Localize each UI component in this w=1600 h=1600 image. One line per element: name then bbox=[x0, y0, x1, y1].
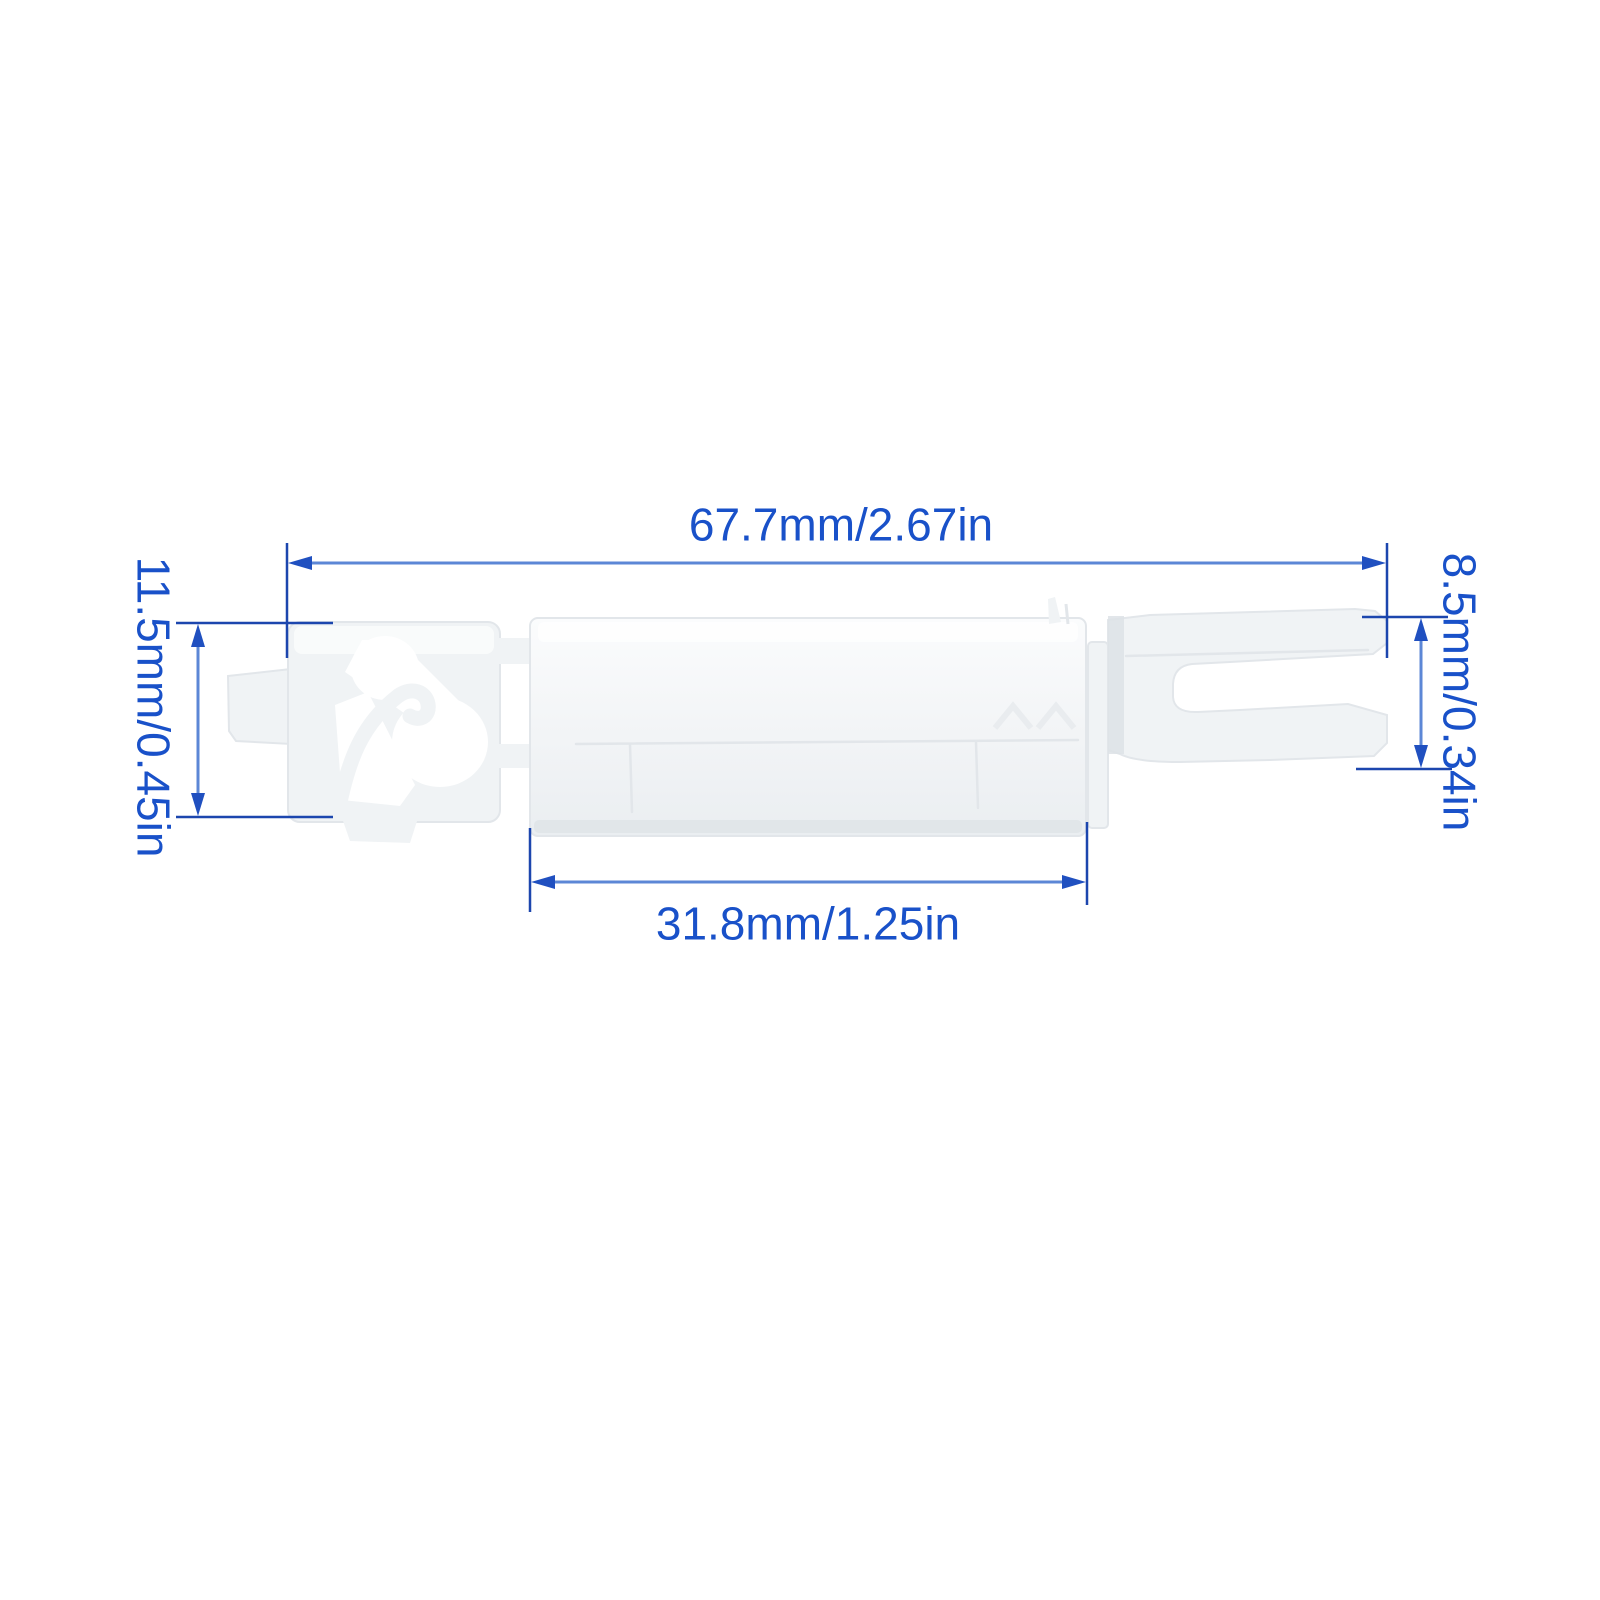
dimension-label-clip-height: 11.5mm/0.45in bbox=[128, 557, 179, 858]
fork-body bbox=[1108, 609, 1387, 762]
clip-left-foot bbox=[342, 818, 418, 843]
clip-strap-top bbox=[497, 638, 533, 664]
arrowhead-clip-bottom bbox=[191, 793, 205, 816]
fork-base-shade bbox=[1108, 616, 1124, 754]
fork-junction bbox=[1088, 642, 1108, 828]
clip-left-tab bbox=[228, 669, 291, 744]
dimension-label-fork-height: 8.5mm/0.34in bbox=[1434, 553, 1485, 832]
arrowhead-body-right bbox=[1062, 875, 1086, 889]
diagram-canvas: 67.7mm/2.67in 11.5mm/0.45in 8.5mm/0.34in… bbox=[0, 0, 1600, 1600]
center-body-bottom-shade bbox=[534, 820, 1082, 833]
arrowhead-fork-top bbox=[1414, 618, 1428, 641]
clip-strap-bottom bbox=[497, 744, 533, 768]
arrowhead-body-left bbox=[531, 875, 555, 889]
arrowhead-clip-top bbox=[191, 624, 205, 647]
part-drawing bbox=[0, 0, 1600, 1600]
dimension-label-body-length: 31.8mm/1.25in bbox=[656, 899, 960, 950]
center-body-section bbox=[530, 597, 1086, 836]
center-body-spike-line bbox=[1066, 604, 1068, 624]
fork-section bbox=[1088, 609, 1387, 828]
clip-part bbox=[228, 597, 1387, 843]
center-body-spike bbox=[1048, 597, 1061, 624]
dimension-label-overall-length: 67.7mm/2.67in bbox=[689, 500, 993, 551]
clip-left-section bbox=[228, 622, 533, 843]
arrowhead-fork-bottom bbox=[1414, 745, 1428, 768]
arrowhead-overall-right bbox=[1362, 556, 1386, 570]
center-body bbox=[530, 618, 1086, 836]
arrowhead-overall-left bbox=[288, 556, 312, 570]
center-body-top-highlight bbox=[538, 622, 1078, 642]
